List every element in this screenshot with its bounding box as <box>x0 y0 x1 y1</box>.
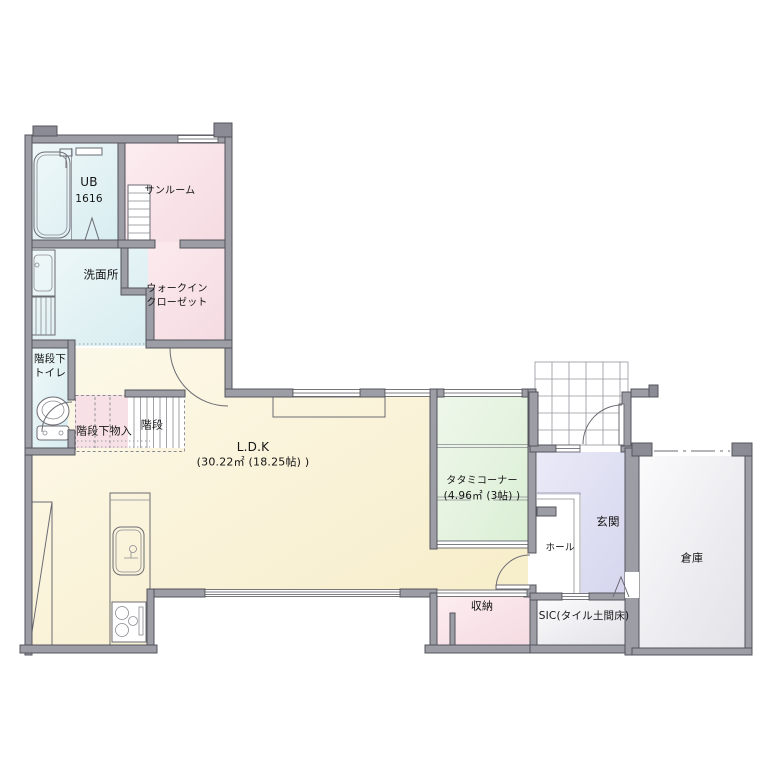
tatami-corner-area-label: (4.96㎡ (3帖) ) <box>444 490 521 502</box>
tatami-corner-label: タタミコーナー <box>446 475 517 487</box>
hall-wall-stub <box>537 507 556 516</box>
ub-size-label: 1616 <box>75 193 103 205</box>
toilet-label-line2: トイレ <box>34 367 66 379</box>
hall-label: ホール <box>545 544 574 555</box>
walk-in-closet-label-line2: クローゼット <box>146 297 207 309</box>
stove <box>112 602 146 642</box>
toilet-label-line1: 階段下 <box>34 353 66 365</box>
floor-plan-svg <box>0 0 768 768</box>
stairs-label: 階段 <box>141 420 163 433</box>
porch-tiles <box>535 362 628 445</box>
tatami-south-opening <box>437 541 528 548</box>
entrance-label: 玄関 <box>596 515 619 528</box>
storage-label: 収納 <box>471 601 493 614</box>
sic-label: SIC(タイル土間床) <box>539 610 630 622</box>
ldk-label: L.D.K <box>237 441 269 455</box>
room-sic <box>537 600 632 645</box>
floor-plan: UB 1616 サンルーム 洗面所 ウォークイン クローゼット 階段下 トイレ … <box>0 0 768 768</box>
room-ub <box>32 143 118 240</box>
sunroom-label: サンルーム <box>145 185 196 197</box>
ub-label: UB <box>80 176 97 190</box>
warehouse-label: 倉庫 <box>681 553 703 566</box>
ldk-area-label: (30.22㎡ (18.25帖) ) <box>197 457 310 470</box>
walk-in-closet-label-line1: ウォークイン <box>146 283 207 295</box>
bath-shelf <box>76 148 102 155</box>
room-tatami-corner <box>437 392 528 545</box>
room-under-stair-storage <box>75 395 128 448</box>
under-stair-storage-label: 階段下物入 <box>76 426 132 439</box>
washroom-label: 洗面所 <box>83 268 118 281</box>
